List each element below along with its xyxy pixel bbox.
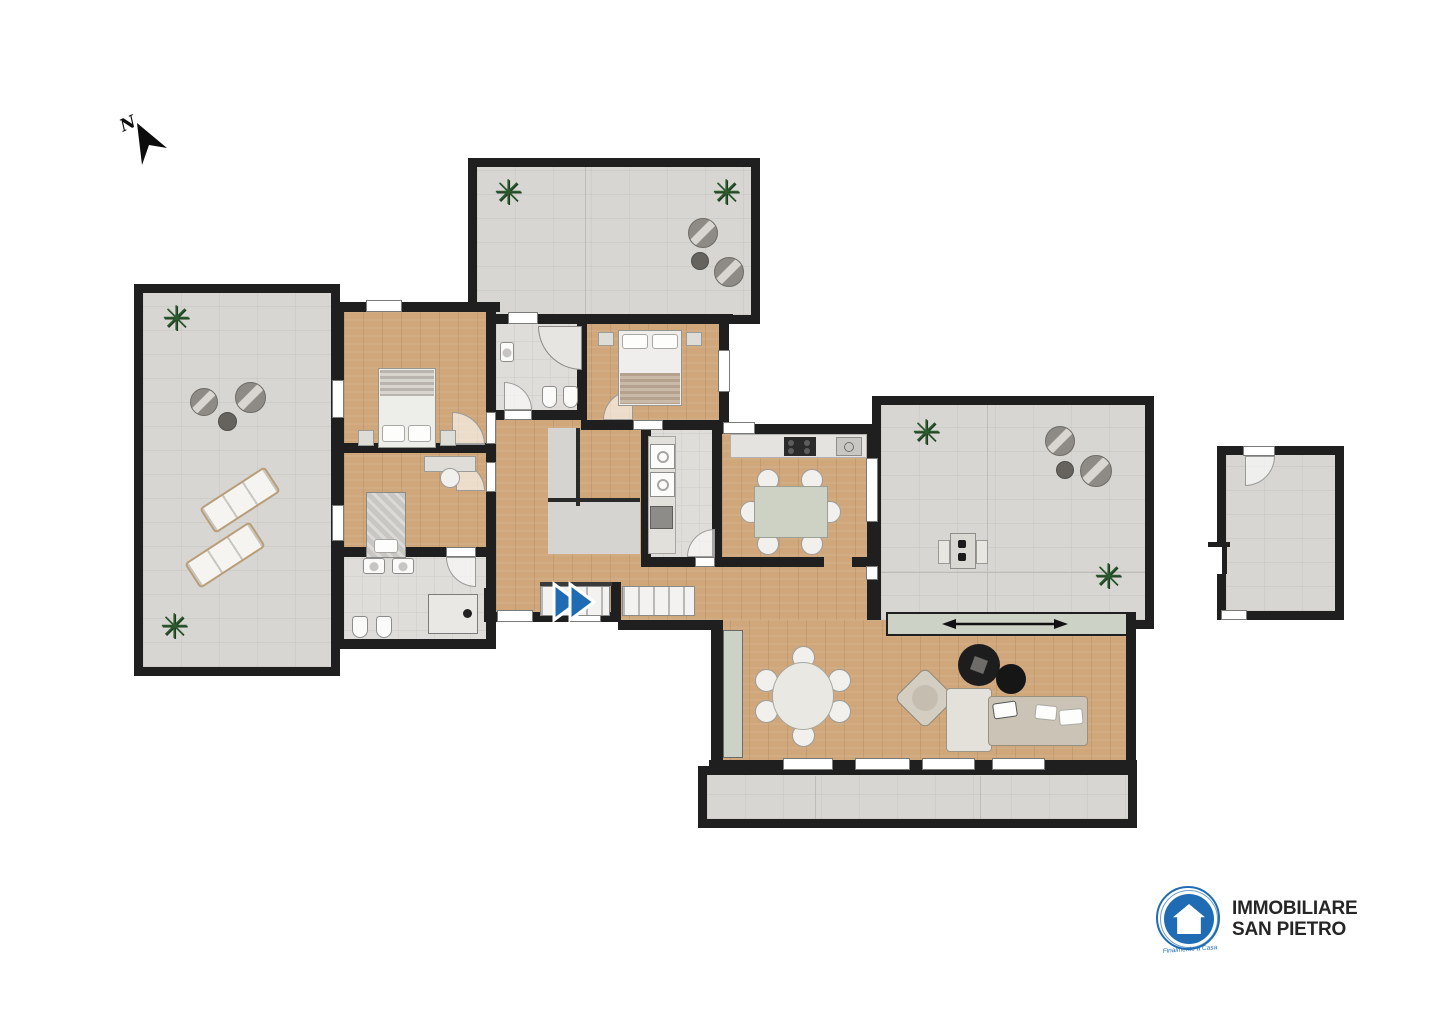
- nightstand: [686, 332, 702, 346]
- toilet: [352, 616, 368, 638]
- plant-icon: ✳: [160, 610, 189, 644]
- window: [866, 566, 878, 580]
- dryer: [650, 472, 675, 497]
- wall-segment: [486, 492, 496, 649]
- door-gap: [486, 462, 496, 492]
- window: [332, 505, 344, 541]
- outdoor-chair: [976, 540, 988, 564]
- north-arrow-icon: N: [116, 108, 180, 172]
- wall-segment: [711, 620, 723, 770]
- plant-icon: ✳: [912, 416, 941, 450]
- sofa-pillow: [1034, 704, 1057, 721]
- kitchen-sink: [836, 437, 862, 456]
- bidet: [376, 616, 392, 638]
- bed-blanket: [620, 373, 680, 404]
- wall-segment: [486, 444, 496, 462]
- nightstand: [440, 430, 456, 446]
- pouf: [1080, 455, 1112, 487]
- stairs-direction-icon: [546, 578, 600, 626]
- door-gap: [504, 410, 532, 420]
- logo-line2: SAN PIETRO: [1232, 919, 1346, 940]
- wall-segment: [334, 639, 494, 649]
- pouf: [1056, 461, 1074, 479]
- bed-double: [378, 368, 436, 448]
- plant-icon: ✳: [712, 176, 741, 210]
- stair-flight: [622, 586, 695, 616]
- north-label: N: [116, 111, 141, 137]
- sink: [363, 558, 385, 574]
- wall-segment: [1222, 542, 1227, 574]
- logo-tagline: Finalmente a Casa: [1158, 944, 1222, 955]
- outdoor-chair: [938, 540, 950, 564]
- terrace-south: [698, 766, 1137, 828]
- plant-icon: ✳: [494, 176, 523, 210]
- window: [718, 350, 730, 392]
- coffee-table: [958, 644, 1000, 686]
- window: [723, 422, 755, 434]
- pouf: [714, 257, 744, 287]
- window: [497, 610, 533, 622]
- sofa: [988, 696, 1088, 746]
- stair-rail: [548, 498, 640, 502]
- nightstand: [598, 332, 614, 346]
- pillow: [652, 334, 678, 349]
- wall-segment: [486, 302, 496, 412]
- stair-rail: [576, 428, 580, 506]
- shower-head: [463, 609, 472, 618]
- sofa-chaise: [946, 688, 992, 752]
- pouf: [190, 388, 218, 416]
- stairwell-landing: [548, 428, 576, 506]
- agency-logo: Finalmente a Casa IMMOBILIARE SAN PIETRO: [1156, 886, 1356, 958]
- bed-single: [366, 492, 406, 558]
- wall-segment: [484, 588, 494, 622]
- bed-double: [618, 330, 682, 406]
- wall-segment: [334, 302, 500, 312]
- desk-chair: [440, 468, 460, 488]
- stair-divider-wall: [611, 582, 621, 622]
- toilet: [542, 386, 557, 408]
- pillow: [408, 425, 431, 442]
- sofa-pillow: [1058, 708, 1083, 726]
- wall-segment: [867, 424, 877, 620]
- glass-wall: [723, 630, 743, 758]
- logo-line1: IMMOBILIARE: [1232, 898, 1358, 919]
- storage-room: [1217, 446, 1344, 620]
- sofa-pillow: [992, 700, 1018, 719]
- window: [1221, 610, 1247, 620]
- window: [366, 300, 402, 312]
- door-gap: [446, 547, 476, 557]
- stairwell-landing: [548, 502, 640, 554]
- logo-disc: [1164, 894, 1214, 944]
- terrace-joint-line: [585, 167, 586, 315]
- shower: [428, 594, 478, 634]
- plant-icon: ✳: [162, 302, 191, 336]
- wall-segment: [334, 302, 344, 649]
- oval-table: [772, 662, 834, 730]
- plant-icon: ✳: [1094, 560, 1123, 594]
- washer-door: [657, 451, 669, 463]
- dining-table: [754, 486, 828, 538]
- terrace-joint-line: [815, 776, 816, 819]
- pouf: [218, 412, 237, 431]
- house-icon: [1173, 904, 1205, 934]
- pillow: [374, 539, 398, 553]
- wall-segment: [532, 410, 587, 420]
- terrace-joint-line: [980, 776, 981, 819]
- door-gap: [1243, 446, 1275, 456]
- wall-segment: [618, 620, 723, 630]
- grill-item: [958, 553, 966, 561]
- north-indicator: N: [116, 108, 180, 172]
- armchair-cushion: [907, 680, 944, 717]
- pouf: [1045, 426, 1075, 456]
- pillow: [382, 425, 405, 442]
- bidet: [563, 386, 578, 408]
- cooktop: [784, 437, 816, 456]
- door-gap: [633, 420, 663, 430]
- wall-segment: [641, 557, 695, 567]
- window: [922, 758, 975, 770]
- bed-blanket: [380, 370, 434, 396]
- window: [855, 758, 910, 770]
- wall-segment: [722, 557, 824, 567]
- coffee-table: [996, 664, 1026, 694]
- wall-segment: [581, 420, 633, 430]
- floor-plan-canvas: N: [0, 0, 1440, 1018]
- window: [866, 458, 878, 522]
- door-gap: [486, 412, 496, 444]
- grill-item: [958, 540, 966, 548]
- sliding-door-arrow-icon: [940, 617, 1070, 631]
- sink: [392, 558, 414, 574]
- window: [992, 758, 1045, 770]
- pillow: [622, 334, 648, 349]
- window: [783, 758, 833, 770]
- window: [332, 380, 344, 418]
- nightstand: [358, 430, 374, 446]
- sink: [500, 342, 514, 362]
- pouf: [235, 382, 266, 413]
- laundry-sink: [650, 506, 673, 529]
- pouf: [688, 218, 718, 248]
- outdoor-table: [950, 533, 976, 569]
- door-gap: [695, 557, 715, 567]
- pouf: [691, 252, 709, 270]
- washer: [650, 444, 675, 469]
- terrace-joint-line: [987, 405, 988, 620]
- dryer-door: [657, 479, 669, 491]
- window: [508, 312, 538, 324]
